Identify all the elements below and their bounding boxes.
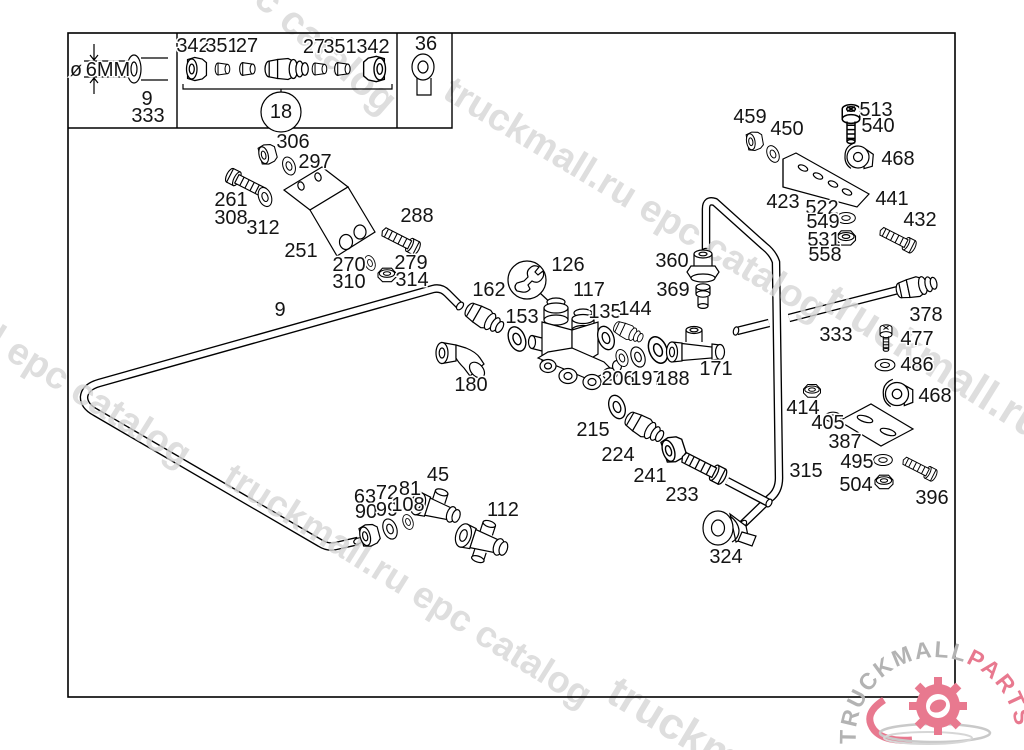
part-label-312: 312 bbox=[246, 217, 279, 239]
parts-diagram-page: c catalogtruckmall.ru epc catalogl epc c… bbox=[0, 0, 1024, 750]
part-label-6MM: 6MM bbox=[86, 59, 130, 81]
part-label-333: 333 bbox=[131, 105, 164, 127]
part-label-215: 215 bbox=[576, 419, 609, 441]
part-label-188: 188 bbox=[656, 368, 689, 390]
part-label-315: 315 bbox=[789, 460, 822, 482]
part-label-387: 387 bbox=[828, 431, 861, 453]
part-label-9: 9 bbox=[274, 299, 285, 321]
part-label-ø: ø bbox=[70, 59, 82, 81]
exploded-parts-diagram: c catalogtruckmall.ru epc catalogl epc c… bbox=[0, 0, 1024, 750]
part-label-324: 324 bbox=[709, 546, 742, 568]
part-171-tee-fitting bbox=[667, 327, 725, 363]
part-label-459: 459 bbox=[733, 106, 766, 128]
part-468-clamp-right bbox=[883, 379, 912, 406]
part-label-540: 540 bbox=[861, 115, 894, 137]
part-label-126: 126 bbox=[551, 254, 584, 276]
part-label-297: 297 bbox=[298, 151, 331, 173]
part-306-nut bbox=[257, 142, 279, 166]
part-36-fitting bbox=[412, 54, 434, 95]
part-label-351: 351 bbox=[323, 36, 356, 58]
part-233-bolt bbox=[679, 449, 729, 486]
part-label-45: 45 bbox=[427, 464, 449, 486]
part-label-144: 144 bbox=[618, 298, 651, 320]
part-label-468: 468 bbox=[881, 148, 914, 170]
part-396-bolt bbox=[900, 454, 938, 482]
part-450-washer bbox=[764, 144, 782, 165]
part-label-241: 241 bbox=[633, 465, 666, 487]
part-label-180: 180 bbox=[454, 374, 487, 396]
part-label-314: 314 bbox=[395, 269, 428, 291]
part-162-fitting bbox=[462, 299, 508, 337]
part-197-washer bbox=[628, 345, 648, 369]
part-label-495: 495 bbox=[840, 451, 873, 473]
part-label-308: 308 bbox=[214, 207, 247, 229]
part-label-396: 396 bbox=[915, 487, 948, 509]
part-459-nut bbox=[745, 130, 764, 151]
part-215-washer bbox=[606, 393, 629, 421]
part-label-360: 360 bbox=[655, 250, 688, 272]
part-label-310: 310 bbox=[332, 271, 365, 293]
part-label-162: 162 bbox=[472, 279, 505, 301]
part-label-432: 432 bbox=[903, 209, 936, 231]
part-513-540-screw bbox=[842, 105, 860, 144]
part-label-558: 558 bbox=[808, 244, 841, 266]
part-label-27: 27 bbox=[303, 36, 325, 58]
part-label-351: 351 bbox=[205, 35, 238, 57]
part-label-153: 153 bbox=[505, 306, 538, 328]
part-label-333: 333 bbox=[819, 324, 852, 346]
part-label-171: 171 bbox=[699, 358, 732, 380]
part-label-90: 90 bbox=[355, 501, 377, 523]
part-495-washer bbox=[874, 454, 893, 465]
part-label-306: 306 bbox=[276, 131, 309, 153]
watermark-text: truckm bbox=[599, 667, 750, 750]
part-label-117: 117 bbox=[573, 279, 605, 301]
part-label-342: 342 bbox=[356, 36, 389, 58]
part-label-112: 112 bbox=[487, 499, 519, 521]
truckmall-parts-logo: TRUCKMALLPARTS bbox=[835, 636, 1024, 744]
part-label-27: 27 bbox=[236, 35, 258, 57]
part-label-288: 288 bbox=[400, 205, 433, 227]
part-label-18: 18 bbox=[270, 101, 292, 123]
part-label-504: 504 bbox=[839, 474, 872, 496]
part-label-477: 477 bbox=[900, 328, 933, 350]
part-224-fitting bbox=[622, 408, 668, 446]
pipes-layer bbox=[84, 201, 898, 546]
part-label-369: 369 bbox=[656, 279, 689, 301]
part-279-nut bbox=[378, 268, 396, 282]
part-label-233: 233 bbox=[665, 484, 698, 506]
part-label-450: 450 bbox=[770, 118, 803, 140]
part-468-clamp-top bbox=[844, 142, 874, 170]
part-369-fitting bbox=[696, 284, 710, 309]
part-504-nut bbox=[875, 475, 893, 489]
logo-gear-icon bbox=[909, 677, 967, 735]
part-label-135: 135 bbox=[588, 301, 621, 323]
part-297-washer bbox=[280, 155, 298, 177]
watermark-text: l epc catalog bbox=[0, 318, 199, 476]
part-label-36: 36 bbox=[415, 33, 437, 55]
part-486-grommet bbox=[875, 359, 895, 371]
part-label-224: 224 bbox=[601, 444, 634, 466]
part-label-486: 486 bbox=[900, 354, 933, 376]
part-414-nut bbox=[804, 384, 821, 397]
pipe-stub-233 bbox=[727, 481, 773, 508]
part-153-washer bbox=[505, 324, 529, 353]
part-label-251: 251 bbox=[284, 240, 317, 262]
part-label-423: 423 bbox=[766, 191, 799, 213]
part-378-fitting bbox=[894, 273, 938, 301]
part-label-468: 468 bbox=[918, 385, 951, 407]
part-label-441: 441 bbox=[875, 188, 908, 210]
part-label-108: 108 bbox=[391, 494, 424, 516]
part-label-378: 378 bbox=[909, 304, 942, 326]
